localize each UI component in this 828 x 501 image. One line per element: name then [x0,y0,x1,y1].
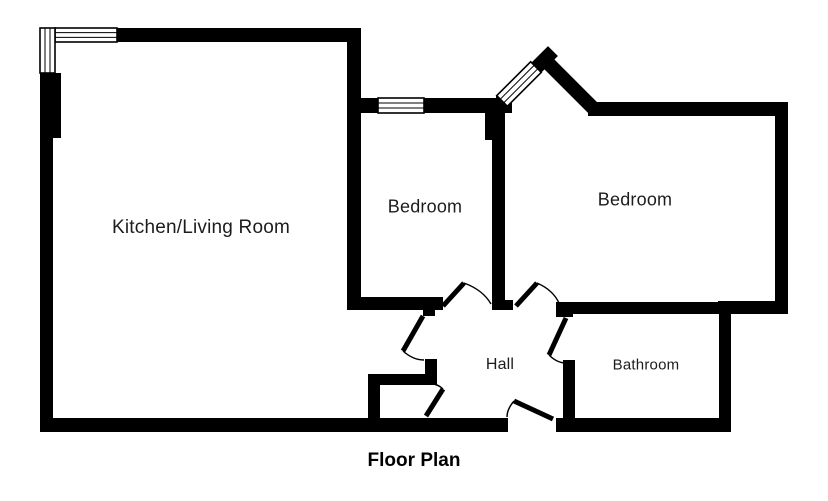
room-label-bathroom: Bathroom [613,357,680,374]
wall-segment [563,360,575,418]
window-frame [55,28,117,42]
wall-segment [368,385,380,418]
wall-segment [40,418,508,432]
wall-segment-diagonal [545,60,591,106]
wall-segment [352,98,378,113]
wall-segment [425,359,437,385]
room-label-bedroom-1: Bedroom [388,197,462,218]
wall-segment [424,98,503,113]
window-frame [378,98,424,113]
hall-door-leaf [403,316,423,351]
wall-segment [347,42,361,310]
wall-segment [556,302,573,317]
entrance-door-swing-arc [507,401,514,417]
wall-segment [40,73,53,418]
wall-segment [116,28,361,42]
bedroom2-door-swing-arc [537,283,559,303]
wall-segment [556,418,731,432]
wall-segment [485,112,492,140]
room-label-hall: Hall [486,356,514,374]
hall-door-swing-arc [403,351,424,360]
wall-segment [423,310,435,316]
entrance-door-leaf [514,401,553,419]
floor-plan-drawing [0,0,828,501]
corner-window-left-window-icon [40,28,55,73]
bedroom2-door-leaf [516,283,537,306]
bedroom1-window-window-icon [378,98,424,113]
floor-plan-canvas: Kitchen/Living RoomBedroomBedroomHallBat… [0,0,828,501]
bathroom-door-leaf [549,318,566,355]
bay-window-diagonal-window-icon [497,62,542,107]
room-label-bedroom-2: Bedroom [598,190,672,211]
window-frame [40,28,55,73]
storage-door-swing-arc [431,384,443,389]
room-label-kitchen-living-room: Kitchen/Living Room [112,217,290,239]
plan-title: Floor Plan [368,450,461,472]
window-frame [497,62,542,107]
wall-segment [556,302,720,314]
bedroom1-door-swing-arc [464,283,491,304]
wall-segment [719,301,731,432]
wall-segment [588,102,788,116]
corner-window-top-window-icon [55,28,117,42]
storage-door-leaf [426,389,443,416]
wall-segment [492,300,513,310]
wall-segment [492,112,505,310]
wall-segment [775,102,788,314]
bedroom1-door-leaf [443,283,464,306]
wall-segment [347,297,443,310]
